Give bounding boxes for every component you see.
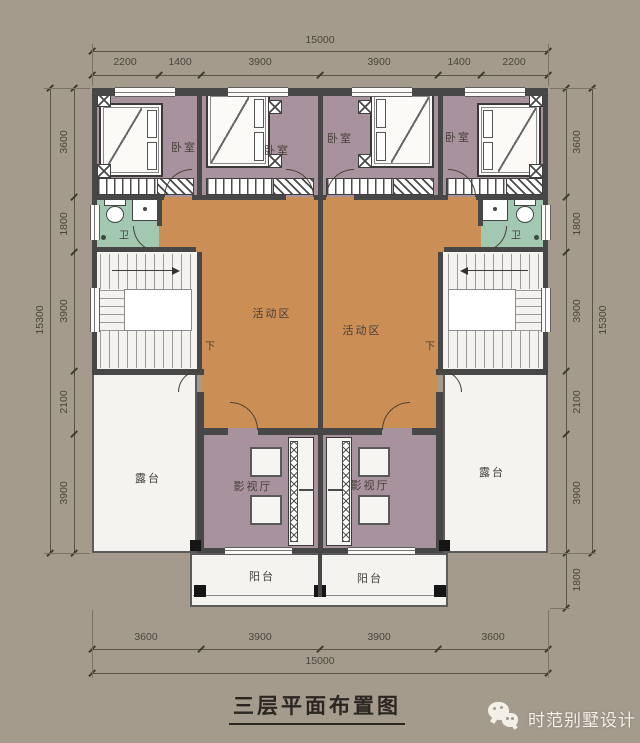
wall-segment bbox=[436, 392, 443, 553]
pillow bbox=[483, 142, 493, 170]
floor-plan-canvas: 卧室 卧室 卧室 卧室 卫 卫 活动区 活动区 下 下 露台 露台 影视厅 影视… bbox=[0, 0, 640, 743]
wall-segment bbox=[197, 88, 202, 198]
dim-label: 15300 bbox=[34, 305, 46, 334]
dim-label: 3600 bbox=[481, 631, 504, 643]
nightstand bbox=[358, 100, 372, 114]
media-seat bbox=[358, 495, 390, 525]
dim-label: 3900 bbox=[248, 56, 271, 68]
stairs-right-arrow-line bbox=[466, 270, 528, 271]
wechat-eye bbox=[511, 717, 514, 720]
extension-line bbox=[550, 608, 570, 609]
stairs-left-arrow-head bbox=[172, 267, 180, 275]
wall-segment bbox=[412, 428, 443, 435]
dim-line bbox=[592, 88, 593, 553]
wechat-icon bbox=[488, 702, 522, 732]
floor-drain bbox=[101, 235, 106, 240]
wechat-bubble-tail bbox=[512, 724, 518, 730]
terrace-right-floor bbox=[443, 370, 548, 553]
pillow bbox=[254, 132, 264, 161]
window bbox=[541, 288, 551, 332]
column bbox=[439, 540, 450, 551]
room-label-media: 影视厅 bbox=[351, 477, 390, 493]
wall-segment bbox=[157, 197, 162, 226]
wall-segment bbox=[354, 195, 448, 200]
bathroom-sink bbox=[482, 197, 508, 221]
pillow bbox=[147, 142, 157, 170]
watermark: 时范别墅设计 bbox=[488, 700, 633, 734]
bathroom-sink bbox=[132, 197, 158, 221]
wall-segment bbox=[444, 247, 548, 252]
media-av-cabinet bbox=[326, 437, 352, 546]
window bbox=[228, 87, 288, 97]
stairs-left-return-flight bbox=[97, 289, 124, 331]
room-label-media: 影视厅 bbox=[234, 478, 273, 494]
extension-line bbox=[92, 610, 93, 678]
stairs-right-lower-flight bbox=[448, 331, 540, 368]
wechat-eye bbox=[493, 707, 496, 710]
dim-label: 3600 bbox=[134, 631, 157, 643]
watermark-brand: 时范别墅设计 bbox=[528, 706, 636, 731]
wall-segment bbox=[543, 88, 548, 205]
dim-line bbox=[92, 51, 548, 52]
bed-blanket-fold bbox=[498, 108, 536, 172]
activity-left-hall-floor bbox=[159, 197, 320, 252]
stairs-right-landing bbox=[448, 289, 516, 331]
pillow bbox=[147, 110, 157, 138]
dim-line bbox=[50, 88, 51, 553]
dim-label: 3900 bbox=[58, 299, 70, 322]
extension-line bbox=[548, 44, 549, 86]
room-label-bedroom: 卧室 bbox=[445, 129, 471, 145]
activity-right-floor bbox=[320, 252, 438, 435]
floor-drain bbox=[534, 235, 539, 240]
room-label-activity: 活动区 bbox=[253, 305, 292, 321]
column bbox=[434, 585, 446, 597]
toilet-bowl bbox=[516, 206, 534, 223]
dim-label: 3900 bbox=[367, 631, 390, 643]
dim-label: 1800 bbox=[58, 212, 70, 235]
dim-label: 1400 bbox=[168, 56, 191, 68]
dim-label: 3900 bbox=[367, 56, 390, 68]
extension-line bbox=[550, 553, 596, 554]
wall-segment bbox=[92, 195, 164, 200]
wall-segment bbox=[438, 88, 443, 198]
balcony-door-window bbox=[348, 547, 415, 555]
room-label-terrace: 露台 bbox=[479, 464, 505, 480]
cabinet-shelf bbox=[328, 489, 343, 491]
nightstand bbox=[529, 164, 543, 178]
activity-right-hall-floor bbox=[320, 197, 481, 252]
dim-label: 2200 bbox=[502, 56, 525, 68]
window bbox=[541, 205, 551, 240]
room-label-activity: 活动区 bbox=[343, 322, 382, 338]
bed-blanket-fold bbox=[104, 108, 142, 172]
nightstand bbox=[97, 164, 111, 178]
wall-segment bbox=[197, 548, 225, 553]
dim-label: 1800 bbox=[571, 568, 583, 591]
activity-left-floor bbox=[202, 252, 320, 435]
pillow bbox=[376, 132, 386, 161]
wall-segment bbox=[197, 252, 202, 370]
dim-label: 2200 bbox=[113, 56, 136, 68]
nightstand bbox=[268, 100, 282, 114]
wardrobe-hang-section bbox=[207, 179, 273, 194]
window bbox=[115, 87, 175, 97]
dim-label: 3600 bbox=[571, 130, 583, 153]
dim-label: 3900 bbox=[571, 481, 583, 504]
extension-line bbox=[92, 44, 93, 86]
window bbox=[90, 288, 100, 332]
wall-segment bbox=[192, 195, 286, 200]
dim-label: 1800 bbox=[571, 212, 583, 235]
dim-line bbox=[92, 673, 548, 674]
dim-label: 2100 bbox=[571, 390, 583, 413]
wall-segment bbox=[197, 428, 228, 435]
dim-label: 2100 bbox=[58, 390, 70, 413]
bed bbox=[370, 92, 434, 168]
column bbox=[194, 585, 206, 597]
extension-line bbox=[550, 88, 596, 89]
wardrobe-shelf-section bbox=[393, 179, 433, 194]
balcony-door-window bbox=[225, 547, 292, 555]
wall-segment bbox=[92, 88, 97, 205]
stairs-left-arrow-line bbox=[112, 270, 174, 271]
party-wall bbox=[318, 88, 323, 553]
nightstand bbox=[358, 154, 372, 168]
dim-label: 15000 bbox=[305, 655, 334, 667]
balcony-divider-wall bbox=[318, 553, 322, 597]
room-label-balcony: 阳台 bbox=[249, 568, 275, 584]
room-label-bathroom: 卫 bbox=[511, 227, 521, 242]
sink-drain bbox=[143, 207, 147, 211]
dim-label: 3900 bbox=[58, 481, 70, 504]
pillow bbox=[376, 99, 386, 128]
window bbox=[352, 87, 412, 97]
room-label-bathroom: 卫 bbox=[119, 227, 129, 242]
window bbox=[465, 87, 525, 97]
bed-blanket-fold bbox=[391, 97, 429, 163]
drawing-title: 三层平面布置图 bbox=[229, 690, 405, 725]
window bbox=[90, 205, 100, 240]
dim-label: 3900 bbox=[571, 299, 583, 322]
sink-drain bbox=[493, 207, 497, 211]
dim-line bbox=[74, 88, 75, 553]
wall-segment bbox=[197, 392, 204, 553]
extension-line bbox=[44, 88, 90, 89]
dim-line bbox=[566, 88, 567, 608]
room-label-bedroom: 卧室 bbox=[327, 130, 353, 146]
room-label-bedroom: 卧室 bbox=[264, 142, 290, 158]
pillow bbox=[254, 99, 264, 128]
wechat-eye bbox=[506, 717, 509, 720]
cabinet-shelf bbox=[299, 489, 314, 491]
dim-label: 1400 bbox=[447, 56, 470, 68]
dim-label: 15000 bbox=[305, 34, 334, 46]
media-seat bbox=[358, 447, 390, 477]
dim-label: 3900 bbox=[248, 631, 271, 643]
stairs-down-label: 下 bbox=[425, 338, 435, 353]
terrace-left-floor bbox=[92, 370, 197, 553]
pillow bbox=[483, 110, 493, 138]
extension-line bbox=[548, 610, 549, 678]
speaker-column bbox=[290, 441, 298, 542]
wall-segment bbox=[258, 428, 318, 435]
stairs-left-landing bbox=[124, 289, 192, 331]
wechat-eye bbox=[500, 706, 503, 709]
wardrobe-shelf-section bbox=[506, 179, 542, 194]
stairs-right-arrow-head bbox=[460, 267, 468, 275]
column bbox=[190, 540, 201, 551]
bed-blanket-fold bbox=[211, 97, 249, 163]
room-label-terrace: 露台 bbox=[135, 470, 161, 486]
wardrobe-hang-section bbox=[98, 179, 157, 194]
speaker-column bbox=[342, 441, 350, 542]
wall-segment bbox=[476, 195, 548, 200]
media-seat bbox=[250, 447, 282, 477]
room-label-balcony: 阳台 bbox=[357, 570, 383, 586]
stairs-right-return-flight bbox=[516, 289, 543, 331]
stairs-left-lower-flight bbox=[100, 331, 192, 368]
dim-label: 15300 bbox=[597, 305, 609, 334]
wall-segment bbox=[314, 195, 326, 200]
stairs-down-label: 下 bbox=[205, 338, 215, 353]
bed bbox=[206, 92, 270, 168]
room-label-bedroom: 卧室 bbox=[171, 139, 197, 155]
media-seat bbox=[250, 495, 282, 525]
extension-line bbox=[44, 553, 90, 554]
wall-segment bbox=[323, 428, 383, 435]
wall-segment bbox=[438, 252, 443, 370]
wall-segment bbox=[478, 197, 483, 226]
dim-label: 3600 bbox=[58, 130, 70, 153]
media-av-cabinet bbox=[288, 437, 314, 546]
toilet-bowl bbox=[106, 206, 124, 223]
